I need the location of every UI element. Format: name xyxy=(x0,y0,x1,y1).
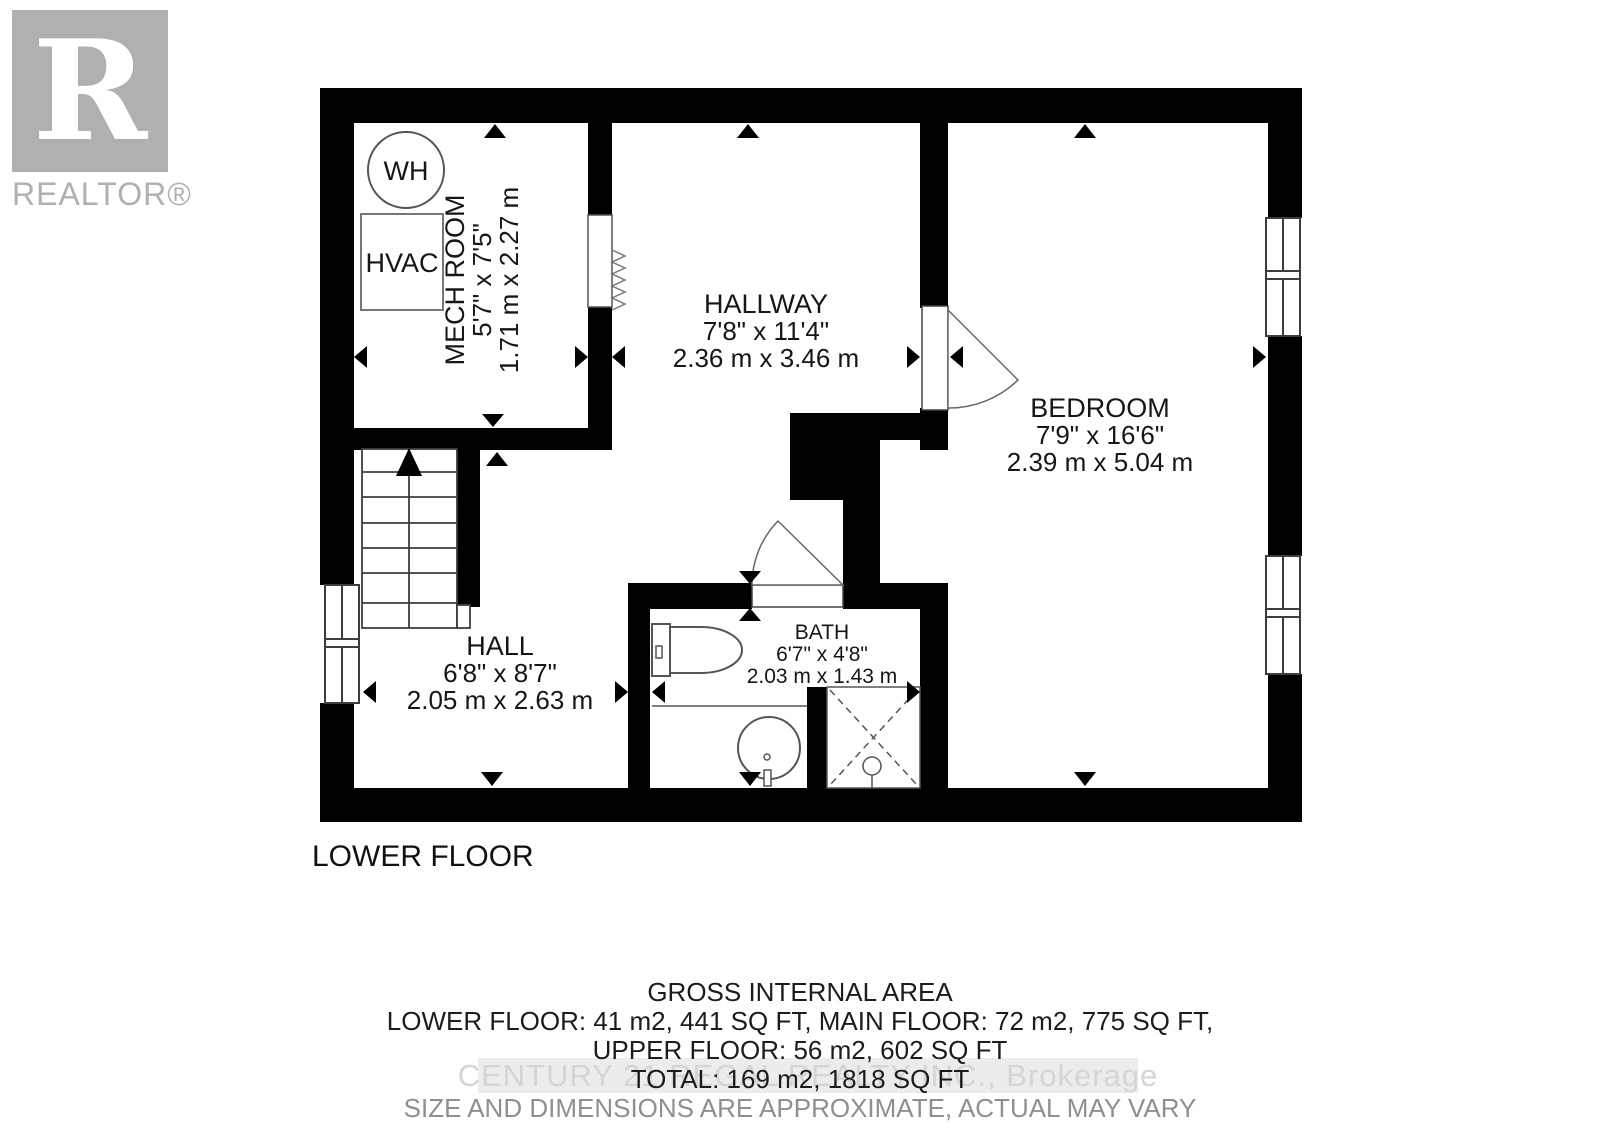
water-heater-label: WH xyxy=(384,156,429,186)
hvac-label: HVAC xyxy=(365,248,438,278)
wall-mech-divider-upper xyxy=(588,120,612,215)
arrow-hallway-right xyxy=(907,346,920,368)
room-dim-metric: 2.36 m x 3.46 m xyxy=(673,343,859,373)
arrow-mech-top xyxy=(484,124,506,138)
bedroom-label: BEDROOM 7'9" x 16'6" 2.39 m x 5.04 m xyxy=(1007,393,1193,477)
window-bedroom-upper xyxy=(1262,218,1304,336)
wall-hallway-corner-block xyxy=(790,438,880,500)
room-dim-metric: 1.71 m x 2.27 m xyxy=(494,187,524,373)
staircase xyxy=(362,448,470,628)
shower-icon xyxy=(827,687,920,788)
floor-plan-drawing: WH HVAC MECH ROOM 5'7" x 7'5" 1.71 m x 2… xyxy=(0,0,1600,1131)
room-dim-imperial: 7'8" x 11'4" xyxy=(703,316,829,346)
arrow-bath-left xyxy=(652,681,665,703)
wall-stair-right xyxy=(457,450,480,607)
room-name: BATH xyxy=(795,621,849,644)
bedroom-door xyxy=(922,306,1018,410)
room-name: HALLWAY xyxy=(704,289,828,319)
room-name: MECH ROOM xyxy=(440,195,470,366)
room-name: HALL xyxy=(466,631,534,661)
floor-plan-page: R REALTOR® xyxy=(0,0,1600,1131)
arrow-bedroom-right xyxy=(1253,346,1266,368)
wall-shower-divider xyxy=(807,687,827,790)
wall-bath-left xyxy=(628,583,650,790)
area-summary-line2: UPPER FLOOR: 56 m2, 602 SQ FT xyxy=(30,1036,1570,1065)
room-dim-metric: 2.05 m x 2.63 m xyxy=(407,685,593,715)
arrow-mech-right xyxy=(575,346,588,368)
wall-mech-bottom xyxy=(320,428,612,450)
room-dim-imperial: 6'7" x 4'8" xyxy=(776,643,868,666)
toilet-icon xyxy=(652,624,742,676)
arrow-bedroom-bottom xyxy=(1074,772,1096,786)
arrow-hallway-top xyxy=(737,124,759,138)
hallway-label: HALLWAY 7'8" x 11'4" 2.36 m x 3.46 m xyxy=(673,289,859,373)
wall-bottom xyxy=(320,788,1302,822)
floor-title: LOWER FLOOR xyxy=(312,840,534,874)
wall-right xyxy=(1268,88,1302,790)
window-left-hall xyxy=(318,585,360,703)
room-dim-imperial: 6'8" x 8'7" xyxy=(443,658,557,688)
area-summary-line3: TOTAL: 169 m2, 1818 SQ FT xyxy=(30,1065,1570,1094)
wall-bedroom-divider-upper xyxy=(920,120,948,308)
wall-top xyxy=(320,88,1302,123)
arrow-hall-bottom xyxy=(481,772,503,786)
wall-bath-right xyxy=(920,583,948,790)
wall-hallway-bottom xyxy=(790,413,948,440)
arrow-bedroom-top xyxy=(1074,124,1096,138)
arrow-mech-bottom xyxy=(482,414,504,427)
area-summary-disclaimer: SIZE AND DIMENSIONS ARE APPROXIMATE, ACT… xyxy=(30,1094,1570,1123)
arrow-bath-bottom xyxy=(739,772,761,786)
arrow-bath-door-bottom xyxy=(739,608,761,621)
arrow-mech-left xyxy=(354,346,367,368)
window-bedroom-lower xyxy=(1262,556,1304,674)
room-dim-imperial: 7'9" x 16'6" xyxy=(1036,420,1164,450)
hall-label: HALL 6'8" x 8'7" 2.05 m x 2.63 m xyxy=(407,631,593,715)
wall-bath-nook xyxy=(843,498,880,586)
arrow-hall-right xyxy=(615,681,628,703)
room-dim-metric: 2.39 m x 5.04 m xyxy=(1007,447,1193,477)
area-summary-line1: LOWER FLOOR: 41 m2, 441 SQ FT, MAIN FLOO… xyxy=(30,1007,1570,1036)
wall-mech-divider-lower xyxy=(588,307,612,430)
room-dim-imperial: 5'7" x 7'5" xyxy=(467,223,497,337)
mech-room-label: MECH ROOM 5'7" x 7'5" 1.71 m x 2.27 m xyxy=(440,187,524,373)
area-summary-title: GROSS INTERNAL AREA xyxy=(30,978,1570,1007)
bath-label: BATH 6'7" x 4'8" 2.03 m x 1.43 m xyxy=(747,621,898,688)
room-name: BEDROOM xyxy=(1030,393,1170,423)
arrow-hall-left xyxy=(363,681,376,703)
bath-door xyxy=(752,521,843,607)
room-dim-metric: 2.03 m x 1.43 m xyxy=(747,665,898,688)
mech-room-opening xyxy=(588,215,625,310)
arrow-hall-top xyxy=(486,452,508,466)
arrow-hallway-left xyxy=(612,346,625,368)
area-summary: GROSS INTERNAL AREA LOWER FLOOR: 41 m2, … xyxy=(30,978,1570,1123)
stair-landing xyxy=(457,605,470,628)
wall-break-zigzag xyxy=(612,250,625,310)
